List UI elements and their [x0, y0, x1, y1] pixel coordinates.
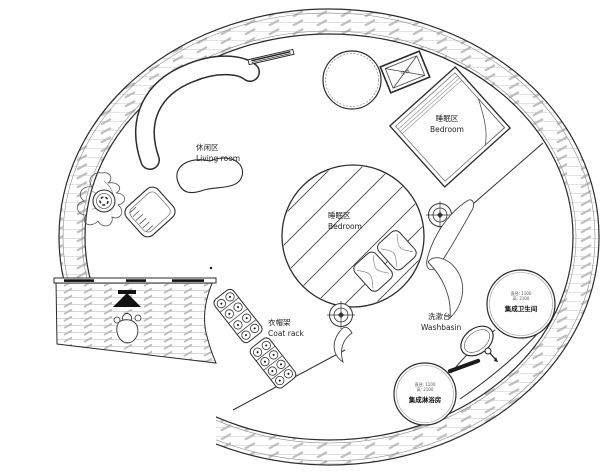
- washbasin-label-zh: 洗漱台: [428, 311, 451, 321]
- coat-rack-unit: [212, 287, 264, 344]
- ac-unit-symbol: 空调: [380, 51, 429, 93]
- washbasin-label-en: Washbasin: [421, 323, 462, 332]
- exterior-mask: [0, 344, 216, 473]
- bathroom-pod-name: 集成卫生间: [504, 304, 538, 313]
- living-room-zone: 休闲区 Living room: [77, 49, 294, 269]
- floor-plan-drawing: 休闲区 Living room 空调 睡眠区 Bedroom: [0, 0, 611, 473]
- shower-pod-name: 集成淋浴房: [408, 395, 442, 404]
- shower-pod-spec2: 高: 2100: [417, 386, 434, 392]
- round-table: [323, 51, 381, 109]
- bedroom-upper-label-zh: 睡眠区: [436, 114, 459, 123]
- point-marker: [210, 267, 212, 269]
- living-room-label-en: Living room: [196, 154, 240, 163]
- coffee-table: [177, 158, 243, 193]
- faucet-icon: [485, 348, 498, 362]
- wall-shelf-bar: [248, 49, 294, 64]
- floor-plan-canvas: 休闲区 Living room 空调 睡眠区 Bedroom: [0, 0, 611, 473]
- bathroom-pod: 直径: 1100 高: 2100 集成卫生间: [487, 270, 555, 338]
- coat-rack-zone: 衣帽架 Coat rack: [212, 287, 305, 390]
- living-room-label-zh: 休闲区: [196, 142, 219, 152]
- bedroom-center-label-zh: 睡眠区: [328, 211, 351, 220]
- bedroom-upper-label-en: Bedroom: [430, 125, 464, 134]
- bedroom-center-label-en: Bedroom: [328, 222, 362, 231]
- shower-pod: 直径: 1100 高: 2100 集成淋浴房: [394, 363, 456, 425]
- coat-rack-label-zh: 衣帽架: [268, 317, 291, 327]
- towel-bar: [447, 358, 480, 373]
- armchair: [122, 184, 179, 240]
- washbasin-icon: [455, 320, 499, 362]
- wall-segment: [126, 279, 146, 282]
- coat-rack-unit: [248, 336, 298, 390]
- coat-rack-label-en: Coat rack: [268, 329, 305, 338]
- bathroom-pod-spec2: 高: 2100: [513, 295, 530, 301]
- wall-segment: [64, 279, 94, 282]
- wall-segment: [172, 279, 204, 282]
